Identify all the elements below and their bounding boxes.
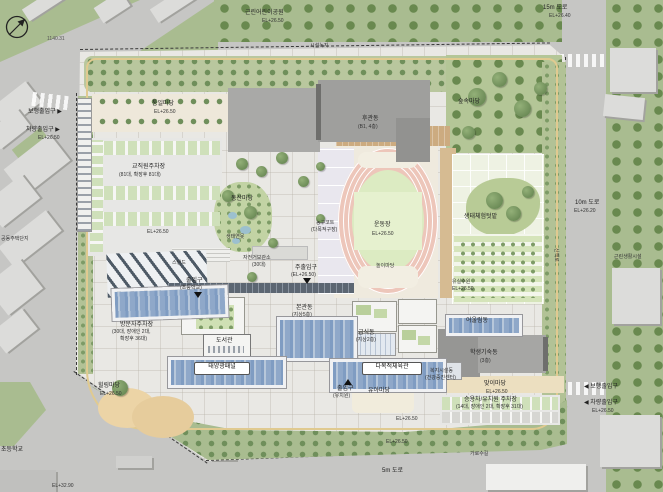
solar-roof-building-west <box>111 285 228 321</box>
label-orchard-el: EL+26.50 <box>452 287 474 293</box>
label-library: 도서관 <box>216 338 233 345</box>
context-building <box>612 268 660 324</box>
tree <box>514 100 531 117</box>
label-parking-sw: 방문자주차장 <box>120 322 153 329</box>
parking-stalls <box>92 186 220 200</box>
solar-panel-tag: 태양광패널 <box>194 362 250 375</box>
label-eco-pond: 생태연못 <box>226 235 244 241</box>
label-trail: 산책로 <box>552 248 558 262</box>
label-road-10m-el: EL+26.20 <box>574 209 596 215</box>
label-road-10m: 10m 도로 <box>575 200 599 207</box>
tree <box>506 206 521 221</box>
label-healing-plaza: 힐링마당 <box>98 383 120 390</box>
tree <box>298 176 309 187</box>
tree <box>462 126 475 139</box>
label-dorm: 학생기숙동 <box>470 350 498 357</box>
site-plan-drawing: 태양광패널 다목적체육관 근린어린이공원 EL+26.50 15m 도로 EL+… <box>0 0 663 492</box>
kindergarten-entrance-marker-icon <box>344 379 352 385</box>
covered-walkway-west <box>77 98 92 232</box>
label-adjacent-school: 초등학교 <box>1 447 23 454</box>
label-park-el: EL+26.50 <box>262 19 284 25</box>
label-parking-sw-count2: 확장후 36대) <box>120 337 147 343</box>
label-veh-entrance-left: 차량출입구 ▶ <box>26 127 60 134</box>
eco-pond <box>240 226 251 234</box>
label-tongil-plaza-el: EL+26.50 <box>154 110 176 116</box>
label-dimension: 1140.31 <box>47 37 65 43</box>
tree <box>492 72 507 87</box>
east-building-a <box>398 299 437 324</box>
label-eco-garden: 생태체험텃밭 <box>464 214 497 221</box>
eco-pond <box>228 212 237 219</box>
label-parking-nw-count: (81대, 확장후 81대) <box>119 173 161 179</box>
label-bike-parking: 자전거보관소 <box>243 256 271 262</box>
label-road-15m: 15m 도로 <box>543 5 567 12</box>
sports-field <box>354 192 422 250</box>
label-main-entrance: 주출입구 <box>295 265 317 272</box>
label-field-el: EL+26.50 <box>372 232 394 238</box>
healing-plaza-mound <box>132 396 194 438</box>
label-bike-count: (30대) <box>252 263 266 269</box>
roof-garden <box>356 305 371 315</box>
label-kinder-entrance: 출입구 <box>337 386 354 393</box>
label-park-name: 근린어린이공원 <box>245 10 284 17</box>
context-building <box>0 470 56 492</box>
label-dorm-fl: (3층) <box>480 359 491 365</box>
tree <box>244 206 257 219</box>
label-tongil-plaza: 통일마당 <box>152 101 174 108</box>
label-field: 운동장 <box>374 222 391 229</box>
tree <box>236 158 248 170</box>
tree-row <box>96 116 224 127</box>
building-shadow <box>543 337 548 371</box>
context-building <box>603 94 645 120</box>
bus-pad <box>116 456 152 468</box>
label-parking-se: 승용차/유치원 주차장 <box>464 397 517 404</box>
label-adjacent-apartments: 공동주택단지 <box>1 237 29 243</box>
label-el-south1: EL+26.50 <box>396 417 418 423</box>
label-welfare-sub: (건강증진센터) <box>425 376 456 382</box>
label-welcome-plaza: 맞이마당 <box>484 381 506 388</box>
label-parking-se-count: (14대, 장애인 2대, 확장후 31대) <box>456 405 523 411</box>
label-road-5m: 5m 도로 <box>382 468 403 475</box>
tree <box>316 162 325 171</box>
label-el-bottom-left: EL+32.90 <box>52 484 74 490</box>
parking-stalls <box>442 412 558 423</box>
label-healing-plaza-el: EL+26.50 <box>100 392 122 398</box>
tree <box>247 272 257 282</box>
label-road-15m-el: EL+26.40 <box>549 14 571 20</box>
label-eoullim: 어울림동 <box>466 318 488 325</box>
label-welcome-plaza-el: EL+26.50 <box>486 390 508 396</box>
label-forest-plaza: 숲속마당 <box>458 99 480 106</box>
label-main-building: 본관동 <box>296 305 313 312</box>
label-rear-building-fl: (B1, 4층) <box>358 125 378 131</box>
roof-garden <box>418 336 430 345</box>
label-adjacent-retail: 근린생활시설 <box>614 255 642 261</box>
tree <box>522 186 534 198</box>
parking-stalls <box>92 212 220 226</box>
label-veh-entrance-left-el: EL+26.50 <box>38 136 60 142</box>
label-veh-entrance-right-el: EL+26.50 <box>592 409 614 415</box>
label-basket-court-sub: (다목적구장) <box>311 228 337 234</box>
label-elem-entrance: 출입구 <box>186 278 203 285</box>
label-kinder-entrance-sub: (유치원) <box>333 394 350 400</box>
main-building-solar-roof <box>277 317 357 361</box>
label-parking-nw: 교직원주차장 <box>132 164 165 171</box>
label-green-strip: 시설녹지 <box>310 44 328 50</box>
label-el-nw: EL+26.50 <box>147 230 169 236</box>
tree <box>256 166 267 177</box>
label-stream: 가로수길 <box>470 452 488 458</box>
label-cafeteria: 급식동 <box>358 330 375 337</box>
gym-tag: 다목적체육관 <box>362 362 422 375</box>
label-basket-court: 농구코트 <box>316 221 334 227</box>
label-ped-entrance-right: ◀ 보행출입구 <box>584 384 618 391</box>
parking-stalls <box>92 141 220 155</box>
label-el-south2: EL+26.50 <box>386 440 408 446</box>
label-orchard: 유실수원 <box>452 280 470 286</box>
roof-garden <box>402 330 416 340</box>
elementary-entrance-marker-icon <box>194 292 202 298</box>
context-building <box>600 415 660 467</box>
building-shadow <box>316 84 321 140</box>
label-dongsan-plaza: 동산마당 <box>231 196 253 203</box>
label-veh-entrance-right: ◀ 차량출입구 <box>584 400 618 407</box>
main-entrance-marker-icon <box>303 278 311 284</box>
tree <box>276 152 288 164</box>
label-rear-building: 후관동 <box>362 116 379 123</box>
label-main-building-fl: (지상5층) <box>292 313 312 319</box>
roof-garden <box>374 309 387 318</box>
tree <box>486 192 503 209</box>
label-stand: 스탠드 <box>172 261 186 267</box>
rear-building-annex <box>396 118 430 162</box>
label-welfare: 복지시설동 <box>430 369 453 375</box>
library-louver <box>208 346 244 353</box>
tree <box>268 238 278 248</box>
context-building <box>486 464 586 490</box>
rear-building-west-wing <box>228 88 320 152</box>
tree <box>534 82 547 95</box>
label-child-plaza: 유아마당 <box>368 388 390 395</box>
label-parking-sw-count: (30대, 장애인 2대, <box>112 330 151 336</box>
label-elem-entrance-sub: (초등학교) <box>180 286 202 292</box>
label-play-area: 놀이마당 <box>376 264 394 270</box>
north-arrow-icon <box>4 14 30 40</box>
label-ped-entrance-left: 보행출입구 ▶ <box>28 109 62 116</box>
label-cafeteria-fl: (지상2층) <box>356 338 376 344</box>
context-building <box>610 48 656 92</box>
